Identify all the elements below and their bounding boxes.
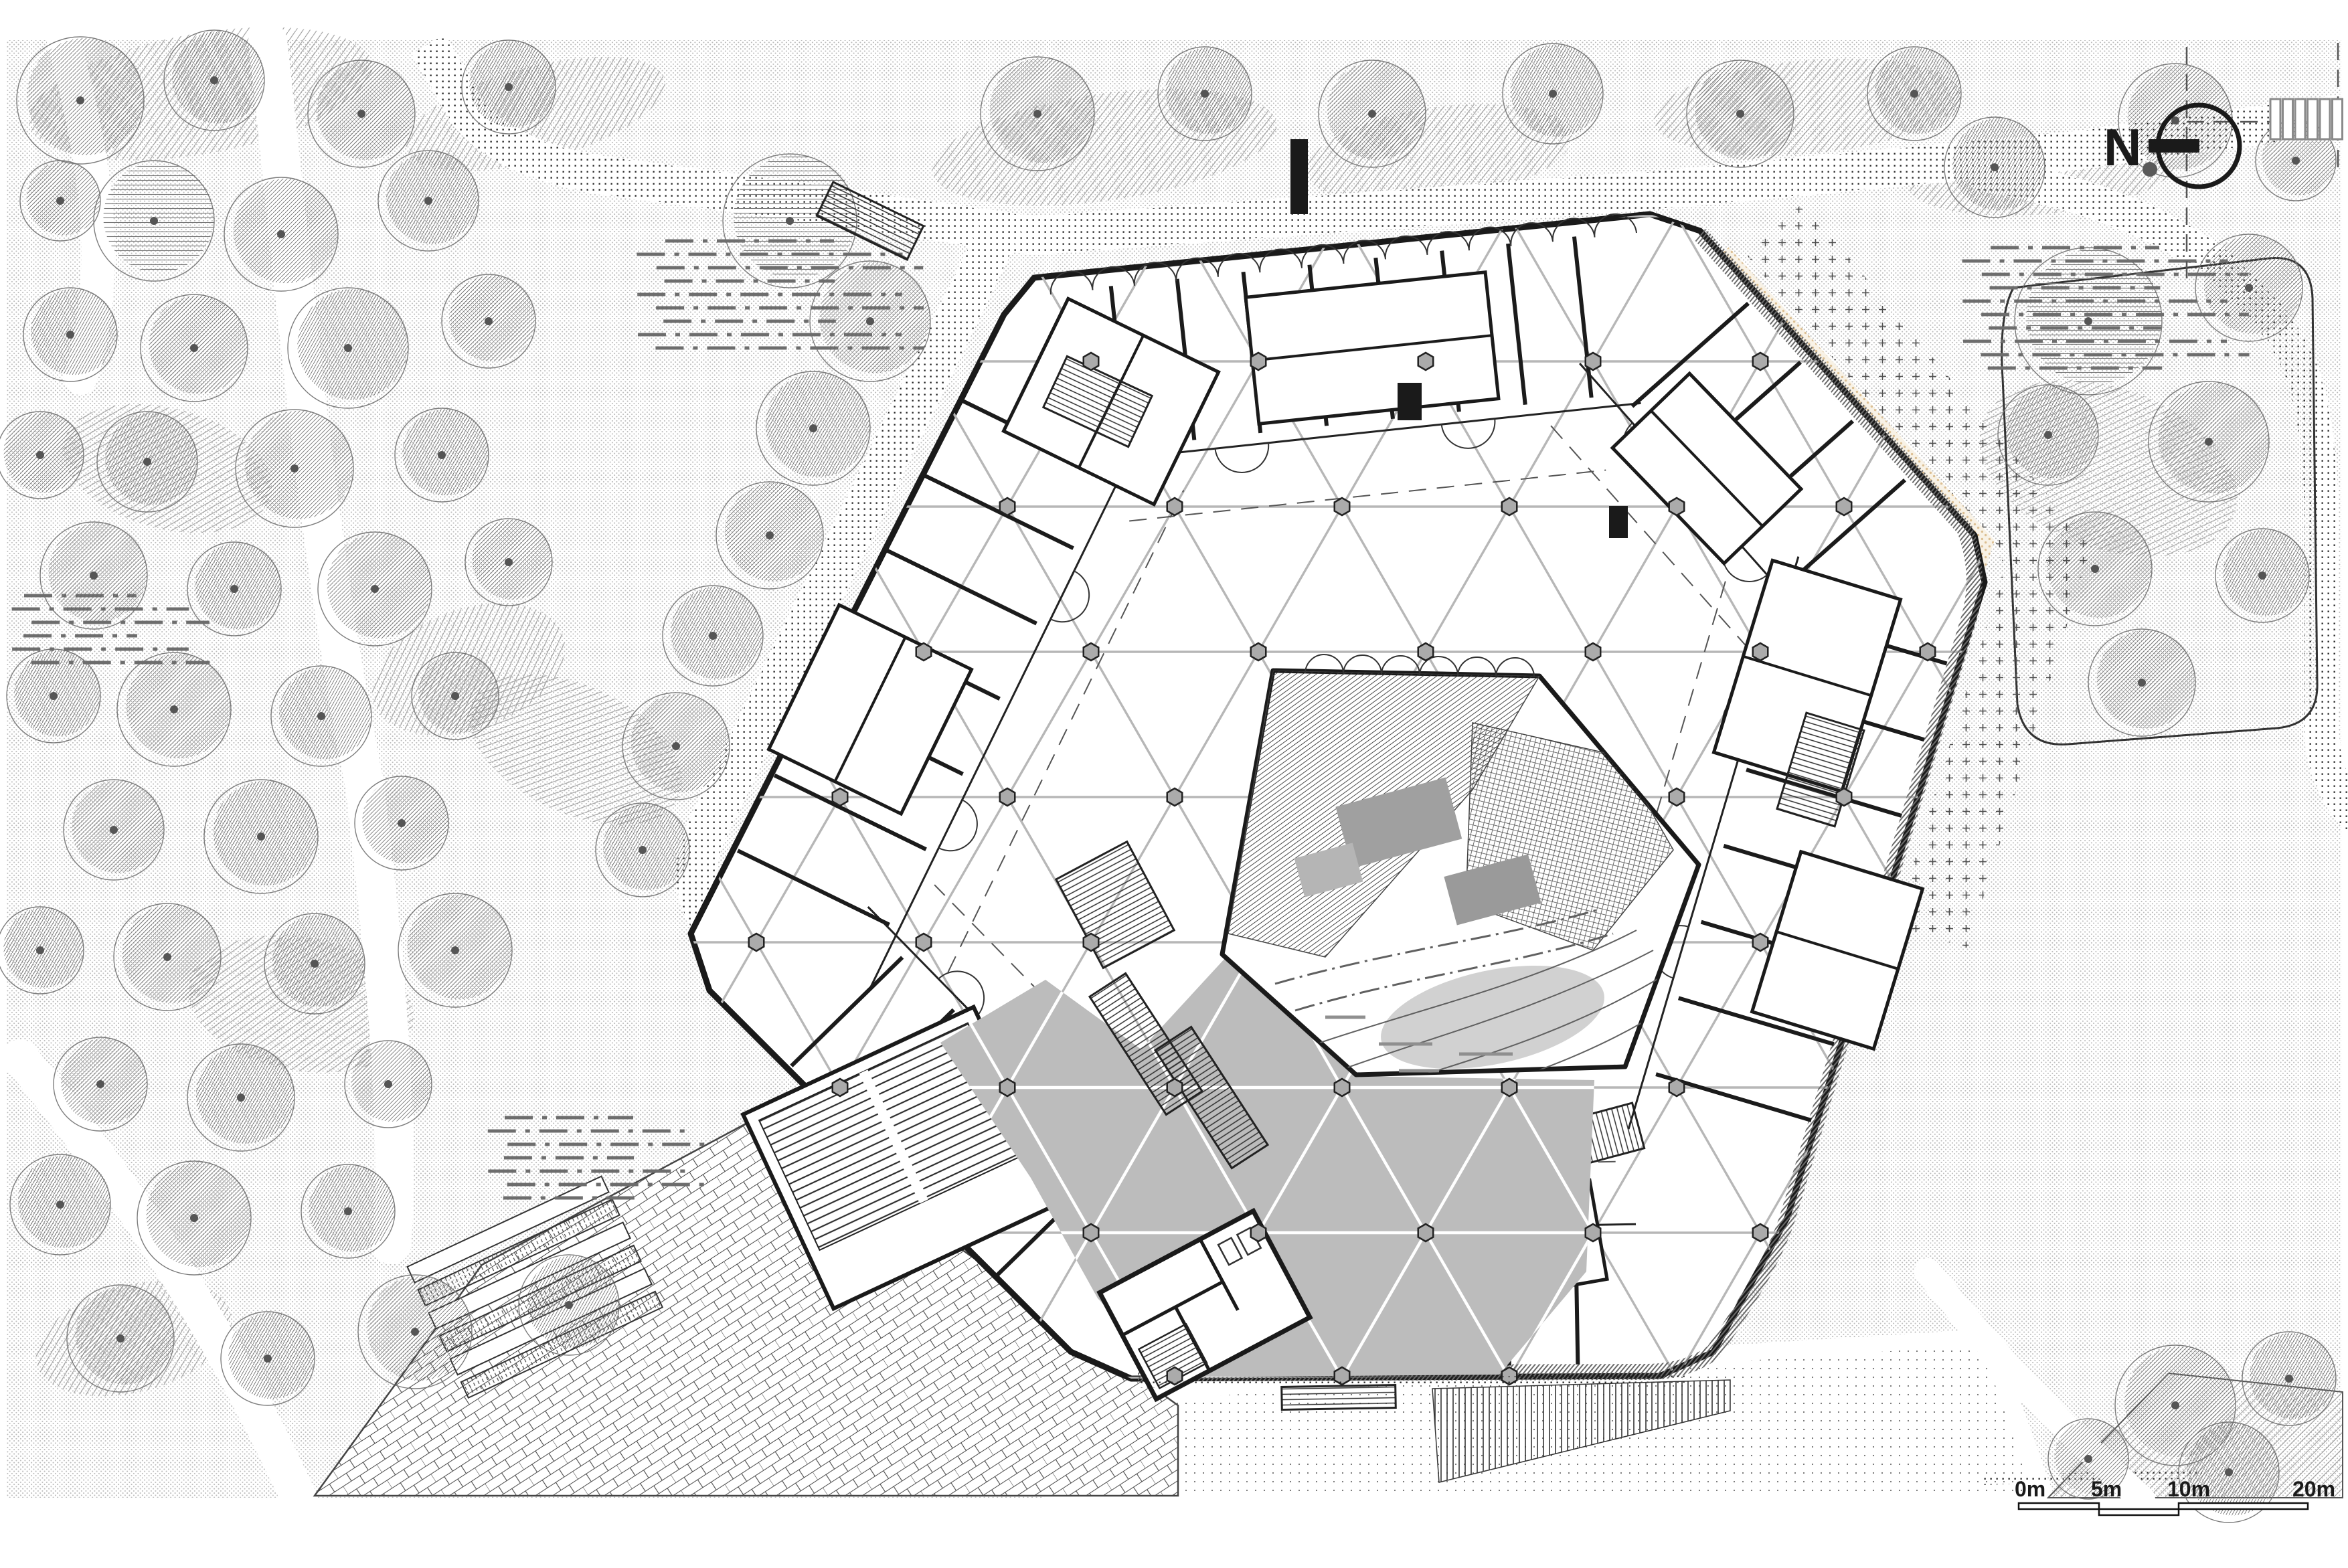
column-node bbox=[1586, 353, 1601, 370]
scale-20m: 20m bbox=[2292, 1477, 2335, 1501]
column-node bbox=[1084, 1224, 1099, 1241]
architectural-site-plan: N 0m 5m 10m 20m bbox=[0, 0, 2348, 1568]
column-node bbox=[1084, 934, 1099, 951]
tree-trunk bbox=[96, 1080, 104, 1088]
north-dot bbox=[2143, 162, 2157, 177]
tree-symbol bbox=[20, 161, 100, 241]
column-node bbox=[1753, 353, 1768, 370]
column-node bbox=[1000, 1079, 1015, 1096]
tree-canopy-hatch bbox=[31, 288, 117, 375]
tree-canopy-hatch bbox=[1875, 48, 1961, 134]
tree-canopy-hatch bbox=[327, 533, 432, 638]
tree-trunk bbox=[230, 585, 238, 593]
scale-10m: 10m bbox=[2167, 1477, 2210, 1501]
column-node bbox=[1920, 643, 1936, 661]
tree-canopy-hatch bbox=[2223, 529, 2309, 616]
column-node bbox=[1251, 643, 1266, 661]
tree-trunk bbox=[2285, 1375, 2293, 1383]
scale-5m: 5m bbox=[2091, 1477, 2122, 1501]
tree-canopy-hatch bbox=[418, 653, 499, 733]
column-node bbox=[1753, 1224, 1768, 1241]
tree-trunk bbox=[66, 331, 74, 339]
tree-canopy-hatch bbox=[3, 907, 84, 988]
tree-canopy-hatch bbox=[469, 41, 556, 127]
column-node bbox=[833, 788, 848, 806]
column-node bbox=[1837, 498, 1852, 515]
tree-trunk bbox=[1736, 110, 1744, 118]
column-node bbox=[1669, 498, 1685, 515]
tree-canopy-hatch bbox=[195, 543, 281, 629]
tree-canopy-hatch bbox=[603, 804, 689, 890]
tree-canopy-hatch bbox=[362, 777, 448, 863]
tree-trunk bbox=[809, 424, 817, 432]
tree-canopy-hatch bbox=[72, 781, 164, 873]
tree-trunk bbox=[2084, 317, 2092, 325]
tree-canopy-hatch bbox=[196, 1045, 295, 1144]
tree-canopy-hatch bbox=[1327, 62, 1426, 160]
column-node bbox=[1335, 498, 1350, 515]
tree-canopy-hatch bbox=[386, 152, 479, 244]
tree-canopy-hatch bbox=[2250, 1332, 2336, 1419]
tree-trunk bbox=[90, 572, 98, 580]
tree-trunk bbox=[264, 1355, 272, 1363]
tree-canopy-hatch bbox=[272, 915, 365, 1007]
column-node bbox=[1167, 498, 1183, 515]
column-node bbox=[1669, 1079, 1685, 1096]
tree-trunk bbox=[709, 632, 717, 640]
tree-canopy-hatch bbox=[351, 1041, 432, 1122]
column-node bbox=[1837, 788, 1852, 806]
column-node bbox=[1418, 643, 1434, 661]
column-node bbox=[1000, 788, 1015, 806]
tree-canopy-hatch bbox=[309, 1165, 395, 1251]
tree-trunk bbox=[277, 230, 285, 238]
tree-canopy-hatch bbox=[27, 38, 144, 155]
tree-trunk bbox=[384, 1080, 392, 1088]
tree-canopy-hatch bbox=[103, 162, 214, 273]
tree-canopy-hatch bbox=[2204, 236, 2302, 334]
tree-trunk bbox=[411, 1328, 419, 1336]
tree-canopy-hatch bbox=[127, 654, 231, 758]
tree-trunk bbox=[150, 217, 158, 225]
tree-trunk bbox=[766, 531, 774, 539]
tree-trunk bbox=[237, 1094, 245, 1102]
tree-canopy-hatch bbox=[234, 179, 338, 283]
tree-trunk bbox=[2044, 431, 2052, 439]
tree-trunk bbox=[866, 317, 874, 325]
column-node bbox=[1418, 353, 1434, 370]
column-node bbox=[1586, 643, 1601, 661]
tree-canopy-hatch bbox=[1952, 118, 2045, 211]
tree-trunk bbox=[357, 110, 365, 118]
tree-trunk bbox=[163, 953, 171, 961]
tree-canopy-hatch bbox=[671, 587, 763, 679]
tree-canopy-hatch bbox=[149, 296, 248, 394]
tree-trunk bbox=[1033, 110, 1041, 118]
north-label: N bbox=[2104, 118, 2141, 177]
tree-canopy-hatch bbox=[631, 694, 730, 792]
tree-canopy-hatch bbox=[367, 1276, 472, 1381]
tree-trunk bbox=[1991, 163, 1999, 171]
column-node bbox=[833, 1079, 848, 1096]
column-node bbox=[1167, 788, 1183, 806]
entrance-axis-marker bbox=[1290, 139, 1308, 214]
tree-trunk bbox=[1368, 110, 1376, 118]
tree-canopy-hatch bbox=[228, 1312, 315, 1399]
tree-canopy-hatch bbox=[402, 409, 489, 495]
tree-trunk bbox=[116, 1334, 124, 1342]
tree-canopy-hatch bbox=[76, 1286, 174, 1385]
tree-trunk bbox=[398, 819, 406, 827]
tree-canopy-hatch bbox=[819, 262, 930, 373]
column-node bbox=[916, 643, 932, 661]
tree-trunk bbox=[1201, 90, 1209, 98]
tree-trunk bbox=[565, 1301, 573, 1309]
tree-trunk bbox=[344, 1207, 352, 1215]
tree-canopy-hatch bbox=[172, 31, 264, 124]
column-node bbox=[1335, 1079, 1350, 1096]
tree-trunk bbox=[371, 585, 379, 593]
tree-canopy-hatch bbox=[18, 1156, 110, 1248]
tree-canopy-hatch bbox=[1165, 48, 1252, 134]
tree-trunk bbox=[36, 946, 44, 954]
column-node bbox=[1669, 788, 1685, 806]
tree-trunk bbox=[2091, 565, 2099, 573]
tree-canopy-hatch bbox=[527, 1256, 619, 1348]
tree-canopy-hatch bbox=[3, 412, 84, 493]
column-node bbox=[749, 934, 764, 951]
tree-canopy-hatch bbox=[725, 483, 823, 582]
tree-trunk bbox=[485, 317, 493, 325]
column-node bbox=[1084, 353, 1099, 370]
tree-trunk bbox=[438, 451, 446, 459]
tree-trunk bbox=[190, 1214, 198, 1222]
tree-trunk bbox=[170, 705, 178, 713]
tree-trunk bbox=[56, 197, 64, 205]
tree-canopy-hatch bbox=[214, 781, 318, 885]
room-block bbox=[1246, 272, 1499, 424]
tree-trunk bbox=[1910, 90, 1918, 98]
tree-trunk bbox=[56, 1201, 64, 1209]
tree-trunk bbox=[639, 846, 647, 854]
shaft bbox=[1398, 383, 1422, 420]
tree-canopy-hatch bbox=[2097, 630, 2195, 729]
tree-trunk bbox=[317, 712, 325, 720]
column-node bbox=[916, 934, 932, 951]
column-node bbox=[1000, 498, 1015, 515]
column-node bbox=[1084, 643, 1099, 661]
tree-trunk bbox=[672, 742, 680, 750]
tree-trunk bbox=[190, 344, 198, 352]
tree-symbol bbox=[345, 1041, 432, 1128]
tree-canopy-hatch bbox=[105, 413, 197, 505]
tree-canopy-hatch bbox=[147, 1162, 251, 1267]
column-node bbox=[1586, 1224, 1601, 1241]
tree-trunk bbox=[505, 558, 513, 566]
north-bar-icon bbox=[2149, 139, 2199, 153]
tree-trunk bbox=[290, 464, 299, 472]
tree-canopy-hatch bbox=[2187, 1423, 2279, 1516]
tree-trunk bbox=[2292, 157, 2300, 165]
tree-canopy-hatch bbox=[990, 58, 1094, 163]
tree-canopy-hatch bbox=[1695, 62, 1794, 160]
tree-trunk bbox=[2225, 1468, 2233, 1476]
tree-trunk bbox=[76, 96, 84, 104]
tree-canopy-hatch bbox=[297, 289, 408, 400]
shaft bbox=[1609, 506, 1628, 538]
column-node bbox=[1753, 643, 1768, 661]
tree-canopy-hatch bbox=[472, 519, 552, 600]
column-node bbox=[1167, 1079, 1183, 1096]
tree-canopy-hatch bbox=[408, 895, 512, 999]
tree-canopy-hatch bbox=[279, 667, 371, 760]
tree-trunk bbox=[210, 76, 218, 84]
tree-canopy-hatch bbox=[245, 411, 353, 519]
tree-trunk bbox=[505, 83, 513, 91]
tree-canopy-hatch bbox=[2027, 249, 2162, 384]
tree-canopy-hatch bbox=[449, 275, 535, 361]
column-node bbox=[1502, 498, 1517, 515]
tree-trunk bbox=[424, 197, 432, 205]
tree-canopy-hatch bbox=[14, 650, 100, 736]
tree-canopy-hatch bbox=[766, 373, 870, 477]
tree-trunk bbox=[344, 344, 352, 352]
bench bbox=[1282, 1385, 1396, 1410]
tree-trunk bbox=[36, 451, 44, 459]
tree-trunk bbox=[1549, 90, 1557, 98]
scale-0m: 0m bbox=[2015, 1477, 2045, 1501]
column-node bbox=[1251, 353, 1266, 370]
tree-trunk bbox=[451, 692, 459, 700]
tree-trunk bbox=[311, 960, 319, 968]
column-node bbox=[1753, 934, 1768, 951]
column-node bbox=[1418, 1224, 1434, 1241]
tree-trunk bbox=[110, 826, 118, 834]
tree-trunk bbox=[2084, 1455, 2092, 1463]
tree-trunk bbox=[143, 458, 151, 466]
tree-trunk bbox=[50, 692, 58, 700]
tree-canopy-hatch bbox=[61, 1038, 147, 1124]
tree-trunk bbox=[2205, 438, 2213, 446]
column-node bbox=[1502, 1079, 1517, 1096]
tree-trunk bbox=[257, 833, 265, 841]
tree-symbol bbox=[465, 519, 552, 606]
tree-trunk bbox=[2258, 572, 2266, 580]
tree-canopy-hatch bbox=[2128, 65, 2232, 169]
tree-canopy-hatch bbox=[1511, 45, 1603, 137]
tree-trunk bbox=[786, 217, 794, 225]
tree-canopy-hatch bbox=[27, 161, 100, 235]
tree-canopy-hatch bbox=[2158, 383, 2269, 494]
tree-symbol bbox=[412, 652, 499, 739]
tree-canopy-hatch bbox=[49, 523, 147, 622]
tree-canopy-hatch bbox=[122, 905, 221, 1003]
tree-trunk bbox=[2171, 1401, 2179, 1409]
drawing-sheet: N 0m 5m 10m 20m bbox=[0, 0, 2348, 1568]
tree-trunk bbox=[2245, 284, 2253, 292]
tree-trunk bbox=[2138, 679, 2146, 687]
tree-canopy-hatch bbox=[317, 62, 415, 160]
tree-trunk bbox=[451, 946, 459, 954]
column-node bbox=[1251, 1224, 1266, 1241]
